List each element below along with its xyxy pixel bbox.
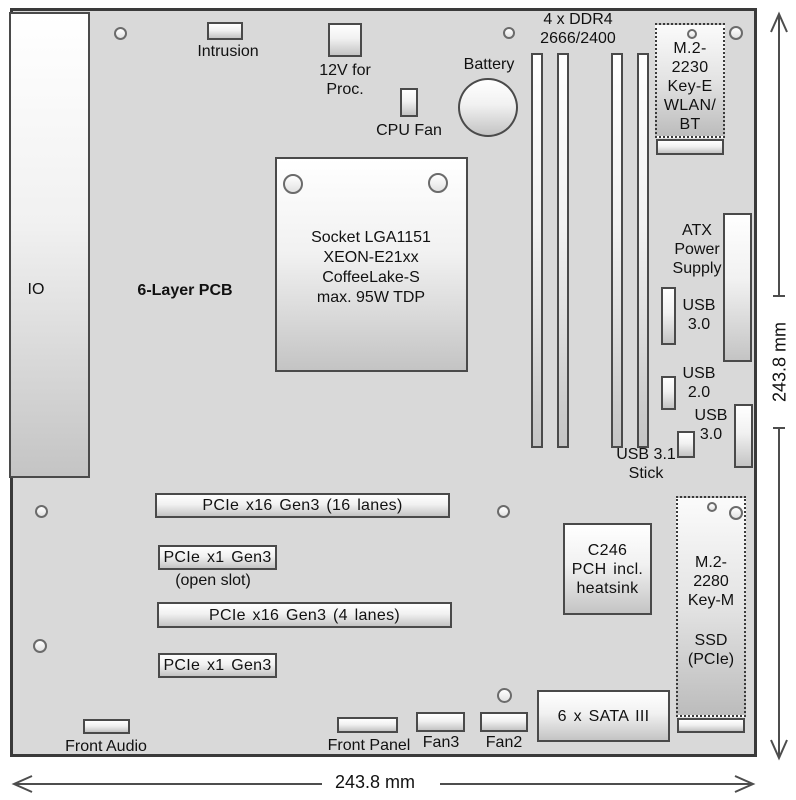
usb31-stick-connector xyxy=(677,431,695,458)
c246-pch: C246 PCH incl. heatsink xyxy=(563,523,652,615)
pcie-x1-open-label: PCIe x1 Gen3 xyxy=(163,548,271,567)
pcie-x1-slot-open: PCIe x1 Gen3 xyxy=(158,545,277,570)
m2-2280-screw-hole xyxy=(707,502,717,512)
battery xyxy=(458,78,518,137)
12v-cpu-power-label: 12V for Proc. xyxy=(319,61,371,99)
mounting-hole-3 xyxy=(729,26,743,40)
motherboard-diagram: IO 6-Layer PCB Intrusion 12V for Proc. C… xyxy=(0,0,796,800)
m2-2280-label-bottom: SSD (PCIe) xyxy=(688,631,734,669)
fan3-header xyxy=(416,712,465,732)
front-audio-label: Front Audio xyxy=(65,737,147,756)
open-slot-note: (open slot) xyxy=(175,571,251,590)
usb30-connector-b xyxy=(734,404,753,468)
m2-2230-connector xyxy=(656,139,724,155)
front-panel-label: Front Panel xyxy=(328,736,411,755)
usb31-stick-label: USB 3.1 Stick xyxy=(616,445,676,483)
12v-cpu-power-connector xyxy=(328,23,362,57)
intrusion-header xyxy=(207,22,243,40)
cpu-socket-label: Socket LGA1151 XEON-E21xx CoffeeLake-S m… xyxy=(311,228,431,308)
mounting-hole-m2-2280 xyxy=(729,506,743,520)
ddr4-slot-3 xyxy=(611,53,623,448)
atx-power-connector xyxy=(723,213,752,362)
io-label: IO xyxy=(28,280,45,299)
cpu-fan-header xyxy=(400,88,418,117)
fan3-label: Fan3 xyxy=(423,733,459,752)
ddr4-slot-1 xyxy=(531,53,543,448)
atx-power-label: ATX Power Supply xyxy=(673,221,722,278)
intrusion-label: Intrusion xyxy=(197,42,258,61)
m2-2230-label: M.2- 2230 Key-E WLAN/ BT xyxy=(664,39,716,134)
m2-2230-slot: M.2- 2230 Key-E WLAN/ BT xyxy=(655,23,725,138)
pcie-x1-label: PCIe x1 Gen3 xyxy=(163,656,271,675)
mounting-hole-6 xyxy=(33,639,47,653)
front-panel-header xyxy=(337,717,398,733)
sata-label: 6 x SATA III xyxy=(558,707,650,726)
pcie-x1-slot: PCIe x1 Gen3 xyxy=(158,653,277,678)
mounting-hole-5 xyxy=(497,505,510,518)
ddr4-slot-4 xyxy=(637,53,649,448)
pcie-x16-16-label: PCIe x16 Gen3 (16 lanes) xyxy=(202,496,402,515)
mounting-hole-2 xyxy=(503,27,515,39)
pcb-type-label: 6-Layer PCB xyxy=(137,281,232,300)
m2-2230-screw-hole xyxy=(687,29,697,39)
mounting-hole-7 xyxy=(497,688,512,703)
pcie-x16-slot-4-lanes: PCIe x16 Gen3 (4 lanes) xyxy=(157,602,452,628)
usb30-header-a xyxy=(661,287,676,345)
usb30-label-a: USB 3.0 xyxy=(683,296,716,334)
io-block xyxy=(9,12,90,478)
c246-pch-label: C246 PCH incl. heatsink xyxy=(572,541,643,598)
fan2-label: Fan2 xyxy=(486,733,522,752)
front-audio-header xyxy=(83,719,130,734)
usb30-label-b: USB 3.0 xyxy=(695,406,728,444)
height-dimension-label: 243.8 mm xyxy=(770,322,791,402)
mounting-hole-4 xyxy=(35,505,48,518)
width-dimension-label: 243.8 mm xyxy=(335,773,415,792)
fan2-header xyxy=(480,712,528,732)
m2-2280-label-top: M.2- 2280 Key-M xyxy=(688,553,734,610)
sata-connectors: 6 x SATA III xyxy=(537,690,670,742)
pcie-x16-slot-16-lanes: PCIe x16 Gen3 (16 lanes) xyxy=(155,493,450,518)
battery-label: Battery xyxy=(464,55,515,74)
ddr4-label: 4 x DDR4 2666/2400 xyxy=(540,10,616,48)
pcie-x16-4-label: PCIe x16 Gen3 (4 lanes) xyxy=(209,606,400,625)
usb20-label: USB 2.0 xyxy=(683,364,716,402)
m2-2280-connector xyxy=(677,718,745,733)
socket-hole-right xyxy=(428,173,448,193)
ddr4-slot-2 xyxy=(557,53,569,448)
usb20-header xyxy=(661,376,676,410)
mounting-hole-1 xyxy=(114,27,127,40)
cpu-fan-label: CPU Fan xyxy=(376,121,442,140)
socket-hole-left xyxy=(283,174,303,194)
